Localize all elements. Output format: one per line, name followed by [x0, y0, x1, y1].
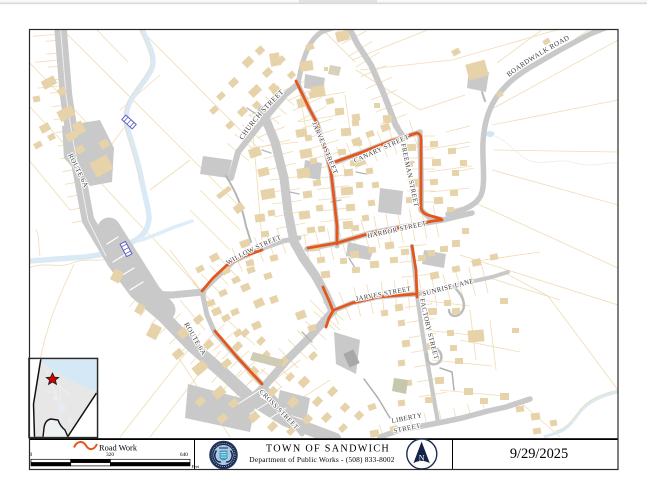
svg-text:Road Work: Road Work	[99, 444, 138, 453]
svg-text:640: 640	[180, 452, 188, 458]
svg-text:N: N	[419, 454, 425, 463]
svg-text:TOWN OF SANDWICH: TOWN OF SANDWICH	[266, 444, 390, 455]
svg-text:Feet: Feet	[191, 464, 199, 469]
svg-text:320: 320	[106, 452, 114, 458]
svg-text:9/29/2025: 9/29/2025	[510, 446, 568, 462]
svg-text:Department of Public Works - (: Department of Public Works - (508) 833-8…	[249, 455, 394, 464]
